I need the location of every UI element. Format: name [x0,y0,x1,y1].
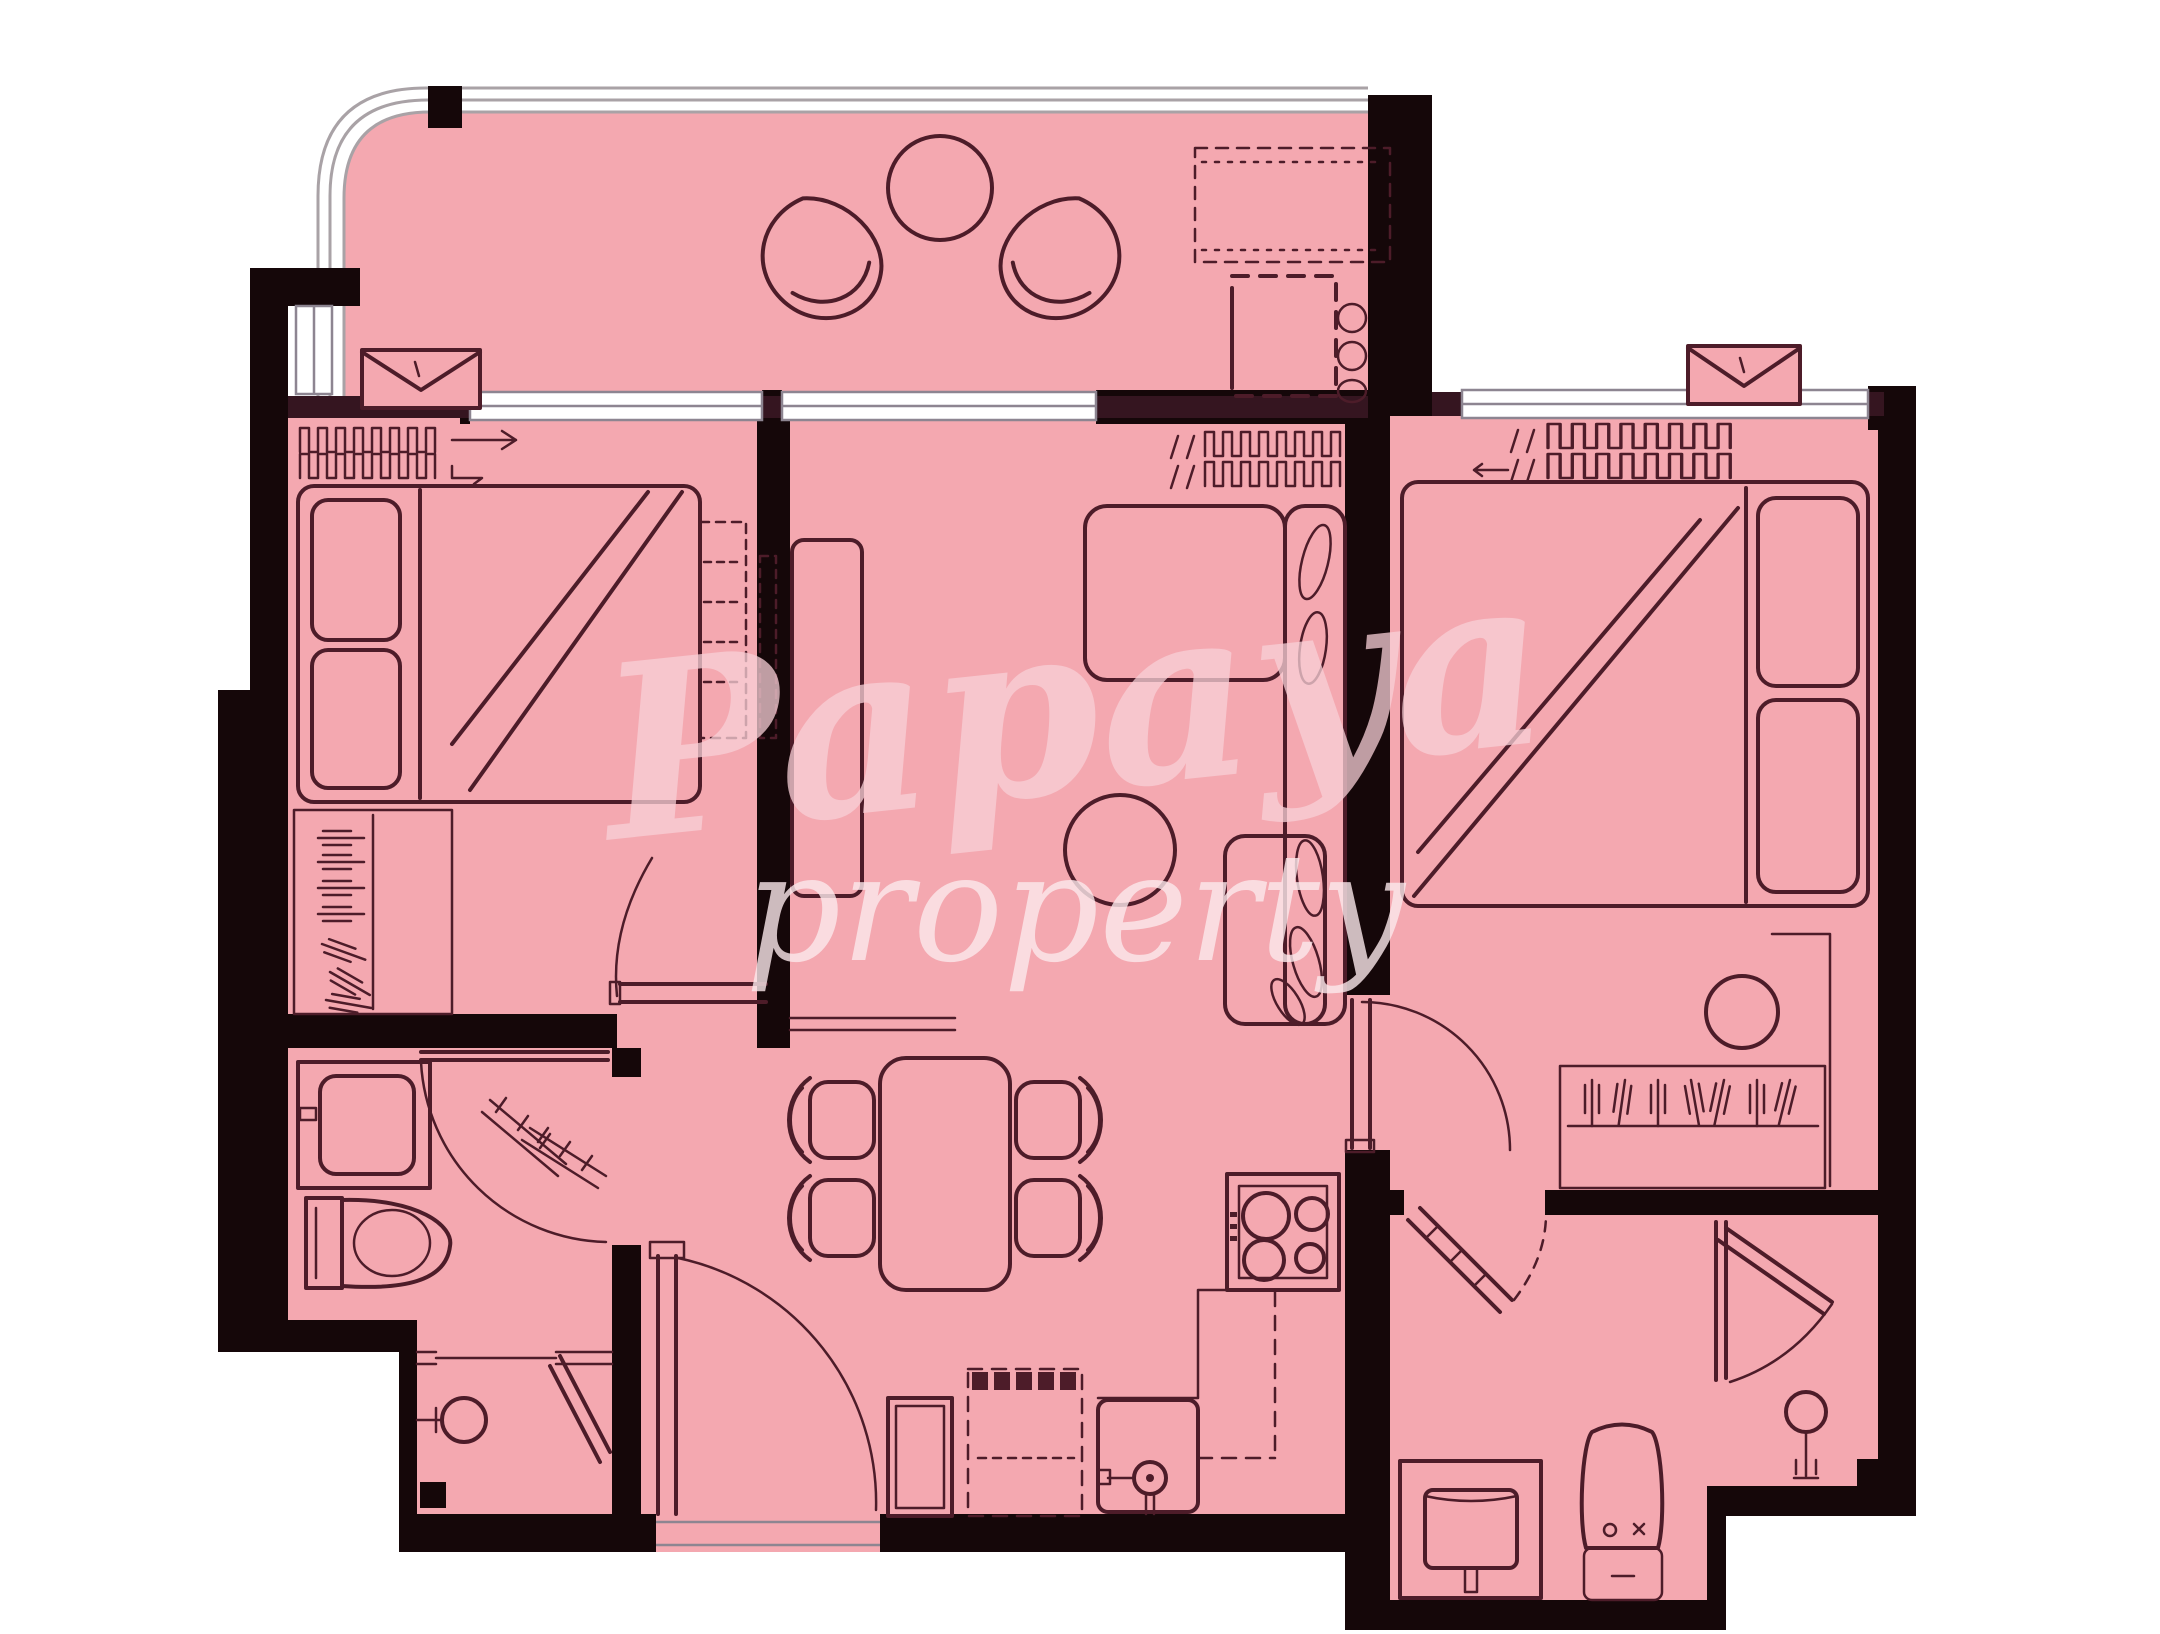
watermark-line2: property [745,822,1407,996]
shower1-drain [420,1482,446,1508]
wall-bottom-b [880,1514,1390,1552]
entrance-threshold [656,1514,880,1552]
wall-left [250,268,288,1352]
wall-bathroom1-right [612,1245,641,1518]
bathroom1-floor [288,1014,648,1352]
ac-indoor-unit-right [1688,346,1800,404]
wall-kitchen-right-lower [1345,1150,1390,1630]
wall-right [1878,388,1916,1486]
wall-shower-left [399,1320,417,1518]
wall-topleft-stub [250,268,360,306]
wall-bathroom2-bottom [1345,1600,1726,1630]
wall-bedroom2-bottom-stub [1390,1190,1404,1215]
wall-bedroom2-bottom [1545,1190,1884,1215]
ac-indoor-unit-left [362,350,480,408]
wall-left-outer [218,690,252,1352]
wall-bedroom1-bottom [250,1014,617,1048]
balcony-floor [344,112,1368,408]
floorplan-drawing: Papaya property [0,0,2160,1634]
wall-bottomright-shower [1707,1486,1916,1516]
floorplan-canvas: Papaya property [0,0,2160,1634]
wall-bathroom1-nib [612,1048,641,1077]
wall-bathroom1-bottom [218,1320,416,1352]
wall-bottom-a [399,1514,656,1552]
wall-balcony-stub [428,86,462,128]
wall-balcony-right [1368,95,1432,416]
shower2-nib [1857,1459,1884,1486]
